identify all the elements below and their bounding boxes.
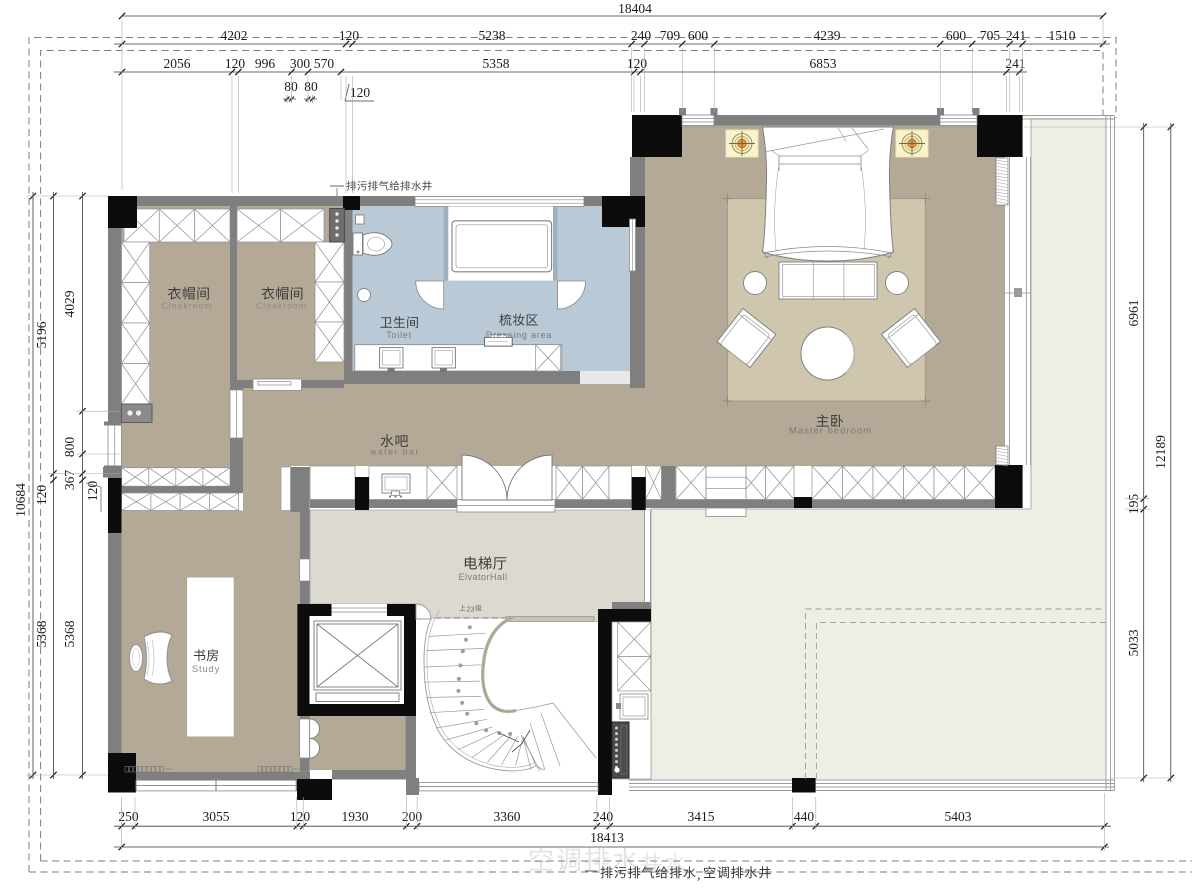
svg-text:367: 367 <box>62 470 77 491</box>
svg-text:Master bedroom: Master bedroom <box>789 426 872 437</box>
svg-text:4202: 4202 <box>221 28 248 43</box>
svg-text:800: 800 <box>62 437 77 458</box>
svg-text:709: 709 <box>660 28 681 43</box>
svg-text:120: 120 <box>339 28 360 43</box>
svg-text:120: 120 <box>34 485 49 506</box>
svg-text:6961: 6961 <box>1126 300 1141 327</box>
svg-text:195: 195 <box>1126 494 1141 515</box>
svg-text:600: 600 <box>688 28 709 43</box>
svg-text:water bar: water bar <box>369 447 420 457</box>
svg-text:Toilet: Toilet <box>386 330 412 340</box>
svg-text:120: 120 <box>290 809 311 824</box>
svg-text:2056: 2056 <box>164 56 191 71</box>
svg-text:Cloakroom: Cloakroom <box>162 301 213 311</box>
svg-text:5403: 5403 <box>945 809 972 824</box>
svg-text:120: 120 <box>350 85 371 100</box>
svg-text:200: 200 <box>402 809 423 824</box>
svg-text:5238: 5238 <box>479 28 506 43</box>
svg-text:12189: 12189 <box>1153 435 1168 469</box>
svg-text:,: , <box>697 868 701 883</box>
svg-text:5033: 5033 <box>1126 629 1141 656</box>
svg-text:120: 120 <box>225 56 246 71</box>
svg-text:1930: 1930 <box>342 809 369 824</box>
svg-text:18404: 18404 <box>618 1 652 16</box>
svg-text:240: 240 <box>593 809 614 824</box>
svg-text:23: 23 <box>467 607 475 614</box>
svg-text:Cloakroom: Cloakroom <box>256 301 307 311</box>
svg-text:300: 300 <box>290 56 311 71</box>
svg-text:996: 996 <box>255 56 276 71</box>
svg-text:5368: 5368 <box>34 620 49 647</box>
svg-text:80: 80 <box>284 79 298 94</box>
svg-text:600: 600 <box>946 28 967 43</box>
svg-text:570: 570 <box>314 56 335 71</box>
svg-text:1510: 1510 <box>1049 28 1076 43</box>
svg-text:6853: 6853 <box>810 56 837 71</box>
svg-text:440: 440 <box>794 809 815 824</box>
svg-text:ElvatorHall: ElvatorHall <box>458 572 507 582</box>
svg-text:3055: 3055 <box>203 809 230 824</box>
svg-text:Dressing area: Dressing area <box>486 330 552 340</box>
svg-text:5368: 5368 <box>62 620 77 647</box>
svg-text:240: 240 <box>631 28 652 43</box>
svg-text:3415: 3415 <box>688 809 715 824</box>
svg-text:120: 120 <box>85 481 100 502</box>
svg-text:5358: 5358 <box>483 56 510 71</box>
svg-text:18413: 18413 <box>590 830 624 845</box>
svg-text:3360: 3360 <box>494 809 521 824</box>
svg-text:241: 241 <box>1006 28 1026 43</box>
svg-text:Study: Study <box>192 664 220 675</box>
svg-text:4029: 4029 <box>62 290 77 317</box>
svg-text:80: 80 <box>304 79 318 94</box>
svg-text:10684: 10684 <box>13 483 28 517</box>
svg-text:5196: 5196 <box>34 321 49 348</box>
svg-text:4239: 4239 <box>814 28 841 43</box>
svg-text:705: 705 <box>980 28 1001 43</box>
